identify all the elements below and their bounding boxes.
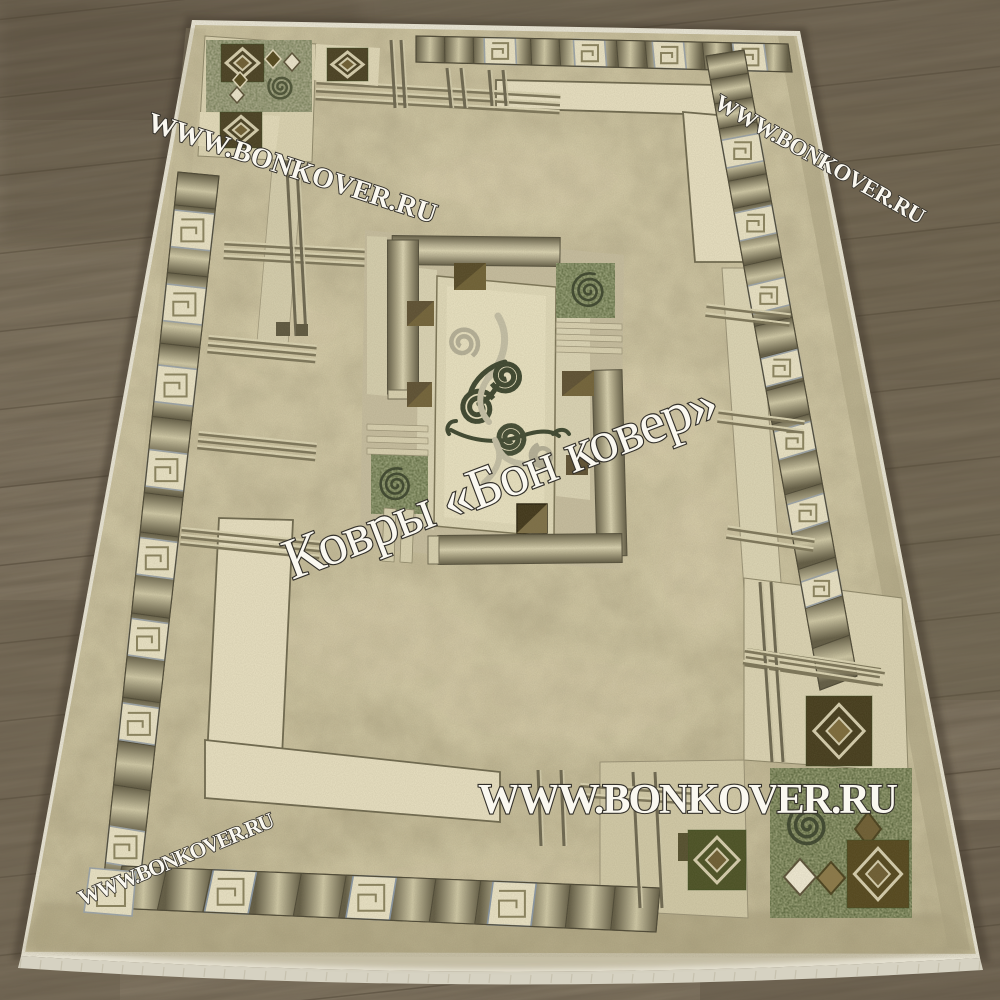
svg-text:WWW.BONKOVER.RU: WWW.BONKOVER.RU bbox=[478, 777, 898, 823]
